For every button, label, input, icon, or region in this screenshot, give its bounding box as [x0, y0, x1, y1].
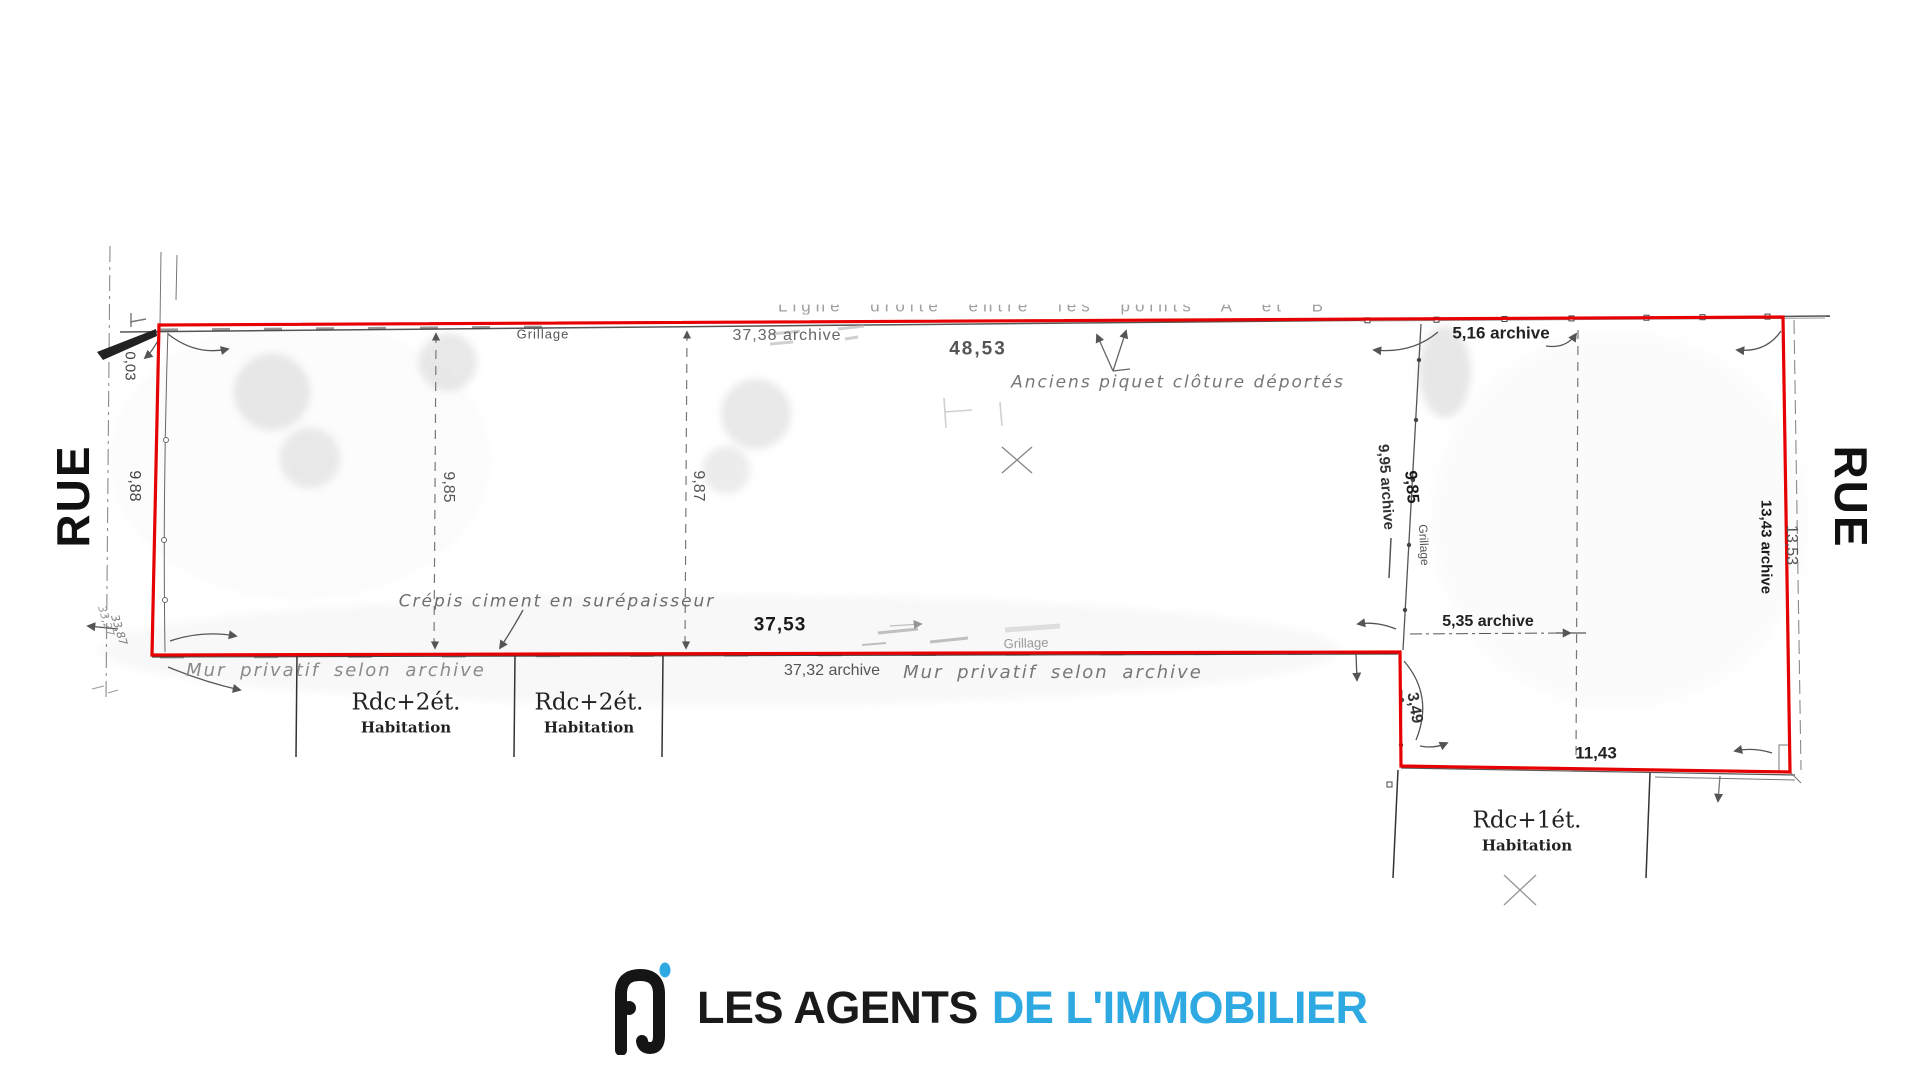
logo-text-blue: DE L'IMMOBILIER [992, 982, 1368, 1033]
anciens-piquet-arrows [1097, 331, 1130, 371]
x-mark-center [1002, 447, 1032, 473]
dim-5-16-archive: 5,16 archive [1452, 325, 1549, 342]
survey-plan-page: RUE RUE Ligne droite entre les points A … [0, 0, 1920, 1080]
street-label-right: RUE [1828, 445, 1874, 548]
dim-0-03: 0,03 [123, 351, 138, 380]
mur-privatif-right: Mur privatif selon archive [903, 664, 1203, 682]
agency-logo-monogram-icon [613, 960, 675, 1055]
anciens-piquet-note: Anciens piquet clôture déportés [1011, 375, 1345, 392]
plan-linework [0, 0, 1920, 1080]
grillage-label-fence: Grillage [1417, 524, 1431, 566]
building-3-type: Rdc+1ét. [1473, 810, 1582, 833]
street-label-left: RUE [50, 444, 96, 547]
dim-9-88: 9,88 [126, 470, 142, 501]
dim-13-53: 13,53 [1783, 525, 1799, 565]
agency-logo-text: LES AGENTSDE L'IMMOBILIER [697, 982, 1368, 1034]
crepis-note: Crépis ciment en surépaisseur [399, 594, 716, 611]
dim-9-85-fence: 9,85 [1402, 470, 1422, 504]
grillage-label-bottom: Grillage [1003, 636, 1048, 651]
building-2-type: Rdc+2ét. [535, 692, 644, 715]
dim-9-85-left: 9,85 [440, 471, 456, 502]
dim-37-38-archive: 37,38 archive [732, 328, 841, 344]
dim-9-87: 9,87 [690, 470, 706, 501]
mur-privatif-left: Mur privatif selon archive [186, 662, 486, 680]
grillage-label-top: Grillage [517, 328, 570, 341]
logo-text-black: LES AGENTS [697, 982, 978, 1033]
dim-37-53: 37,53 [754, 616, 807, 635]
dim-11-43: 11,43 [1575, 745, 1617, 762]
building-2-use: Habitation [544, 721, 634, 736]
x-mark-bottom-right [1504, 875, 1536, 905]
agency-logo: LES AGENTSDE L'IMMOBILIER [613, 960, 1368, 1055]
building-3-use: Habitation [1482, 839, 1572, 854]
building-1-type: Rdc+2ét. [352, 692, 461, 715]
building-1-use: Habitation [361, 721, 451, 736]
dim-48-53: 48,53 [949, 340, 1007, 359]
dim-37-32-archive: 37,32 archive [784, 663, 880, 679]
dim-13-43-archive: 13,43 archive [1759, 500, 1774, 594]
dim-5-35-archive: 5,35 archive [1442, 614, 1534, 630]
